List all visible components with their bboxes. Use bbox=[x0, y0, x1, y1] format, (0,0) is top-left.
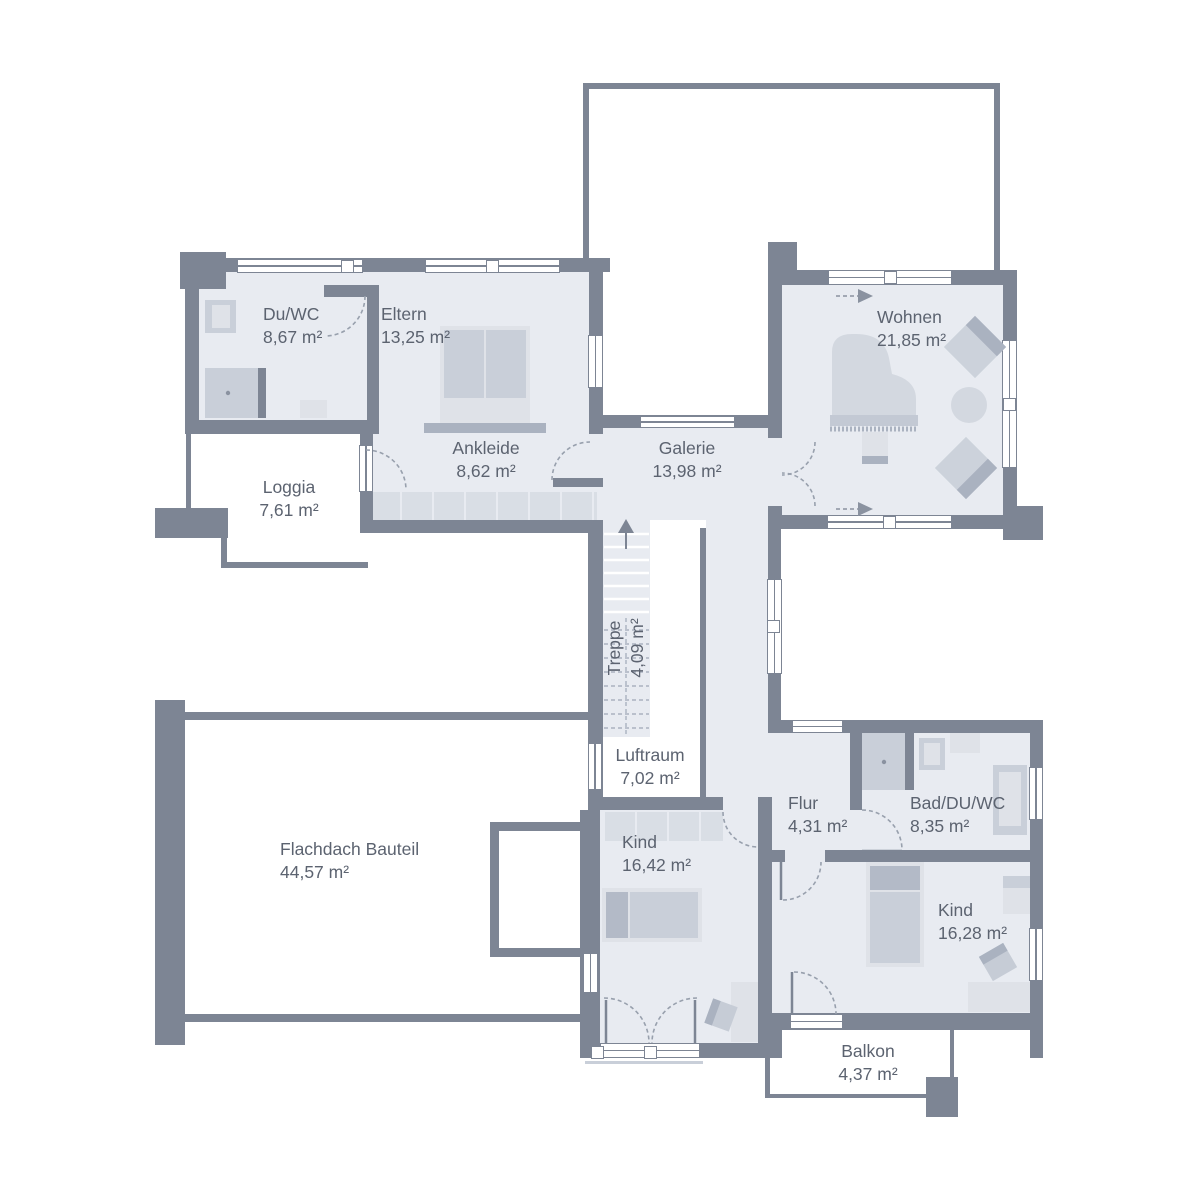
room-label-du-wc: Du/WC 8,67 m² bbox=[263, 303, 322, 349]
room-label-balkon: Balkon 4,37 m² bbox=[838, 1040, 897, 1086]
wall-segment bbox=[155, 508, 228, 538]
window bbox=[583, 953, 598, 993]
room-area: 7,02 m² bbox=[615, 767, 684, 790]
wall-segment bbox=[186, 434, 191, 512]
wall-segment bbox=[367, 285, 379, 420]
window-mullion bbox=[341, 260, 354, 273]
room-area: 13,25 m² bbox=[381, 326, 450, 349]
room-area: 16,28 m² bbox=[938, 922, 1007, 945]
room-name: Flachdach Bauteil bbox=[280, 838, 419, 861]
wall-segment bbox=[758, 1013, 782, 1058]
window-glazing-line bbox=[595, 336, 597, 387]
wall-segment bbox=[592, 797, 723, 810]
room-label-bad: Bad/DU/WC 8,35 m² bbox=[910, 792, 1005, 838]
wall-segment bbox=[765, 1058, 770, 1098]
wall-segment bbox=[758, 797, 772, 1045]
room-area: 4,09 m² bbox=[626, 618, 649, 677]
room-name: Wohnen bbox=[877, 306, 946, 329]
room-name: Balkon bbox=[838, 1040, 897, 1063]
room-area: 44,57 m² bbox=[280, 861, 419, 884]
wall-segment bbox=[324, 285, 379, 297]
wall-segment bbox=[825, 850, 862, 862]
room-name: Ankleide bbox=[452, 437, 519, 460]
window bbox=[359, 445, 373, 492]
room-label-wohnen: Wohnen 21,85 m² bbox=[877, 306, 946, 352]
window-mullion bbox=[883, 516, 896, 529]
room-name: Loggia bbox=[259, 476, 318, 499]
window-mullion bbox=[767, 620, 780, 633]
wall-segment bbox=[583, 83, 589, 271]
bed-pillow bbox=[870, 866, 920, 890]
window-mullion bbox=[644, 1046, 657, 1059]
wall-segment bbox=[553, 478, 603, 487]
window bbox=[790, 1014, 843, 1029]
wall-segment bbox=[926, 1077, 958, 1117]
room-name: Kind bbox=[622, 831, 691, 854]
door-sill bbox=[585, 1061, 703, 1064]
bed-bench bbox=[424, 423, 546, 433]
sink-basin bbox=[212, 305, 230, 328]
room-floor bbox=[850, 810, 862, 850]
bed-pillow bbox=[606, 892, 628, 938]
window-glazing-line bbox=[590, 954, 592, 992]
room-area: 4,37 m² bbox=[838, 1063, 897, 1086]
window-mullion bbox=[1003, 398, 1016, 411]
wall-segment bbox=[185, 258, 199, 434]
room-area: 8,35 m² bbox=[910, 815, 1005, 838]
room-name: Treppe bbox=[603, 618, 626, 677]
window-mullion bbox=[884, 271, 897, 284]
wall-segment bbox=[185, 420, 379, 434]
room-label-luftraum: Luftraum 7,02 m² bbox=[615, 744, 684, 790]
wall-segment bbox=[950, 1030, 954, 1078]
wall-segment bbox=[905, 733, 914, 790]
room-name: Eltern bbox=[381, 303, 450, 326]
wall-segment bbox=[850, 733, 862, 810]
window-mullion bbox=[591, 1046, 604, 1059]
wall-segment bbox=[580, 810, 600, 1043]
room-label-flur: Flur 4,31 m² bbox=[788, 792, 847, 838]
shower bbox=[862, 733, 906, 790]
room-name: Bad/DU/WC bbox=[910, 792, 1005, 815]
shelf-top bbox=[1003, 876, 1030, 888]
washbasin-bowl bbox=[924, 743, 940, 765]
wall-segment bbox=[360, 520, 603, 533]
wall-segment bbox=[768, 242, 797, 272]
room-area: 8,67 m² bbox=[263, 326, 322, 349]
room-name: Du/WC bbox=[263, 303, 322, 326]
room-area: 8,62 m² bbox=[452, 460, 519, 483]
wall-segment bbox=[490, 822, 600, 831]
room-name: Kind bbox=[938, 899, 1007, 922]
room-name: Luftraum bbox=[615, 744, 684, 767]
side-table bbox=[862, 432, 888, 456]
wall-segment bbox=[758, 850, 785, 862]
room-label-kind-2: Kind 16,28 m² bbox=[938, 899, 1007, 945]
wall-segment bbox=[862, 850, 1043, 862]
side-table-edge bbox=[862, 456, 888, 464]
room-label-eltern: Eltern 13,25 m² bbox=[381, 303, 450, 349]
wall-segment bbox=[700, 528, 706, 807]
desk bbox=[968, 982, 1030, 1012]
window-mullion bbox=[486, 260, 499, 273]
window-glazing-line bbox=[1035, 929, 1037, 980]
toilet bbox=[300, 400, 327, 418]
room-label-treppe: Treppe 4,09 m² bbox=[603, 618, 649, 677]
room-name: Galerie bbox=[652, 437, 721, 460]
floor-plan: Du/WC 8,67 m² Eltern 13,25 m² Ankleide 8… bbox=[0, 0, 1200, 1200]
wall-segment bbox=[183, 712, 593, 720]
window-glazing-line bbox=[793, 726, 842, 728]
room-area: 16,42 m² bbox=[622, 854, 691, 877]
window-glazing-line bbox=[594, 744, 596, 789]
wall-segment bbox=[155, 700, 185, 1045]
room-area: 21,85 m² bbox=[877, 329, 946, 352]
bed-duvet bbox=[630, 892, 698, 938]
window-glazing-line bbox=[1035, 768, 1037, 819]
window bbox=[588, 743, 602, 790]
window bbox=[1029, 767, 1043, 820]
window bbox=[588, 335, 603, 388]
window-glazing-line bbox=[365, 446, 367, 491]
wall-segment bbox=[490, 822, 499, 957]
room-area: 7,61 m² bbox=[259, 499, 318, 522]
room-name: Flur bbox=[788, 792, 847, 815]
room-label-loggia: Loggia 7,61 m² bbox=[259, 476, 318, 522]
wall-segment bbox=[994, 83, 1000, 273]
wall-segment bbox=[768, 271, 782, 438]
wall-segment bbox=[583, 83, 1000, 89]
bed-duvet bbox=[486, 330, 526, 398]
wall-segment bbox=[258, 368, 266, 418]
wall-segment bbox=[183, 1014, 593, 1022]
room-label-flachdach: Flachdach Bauteil 44,57 m² bbox=[280, 838, 419, 884]
window bbox=[792, 720, 843, 733]
window bbox=[1029, 928, 1043, 981]
room-label-ankleide: Ankleide 8,62 m² bbox=[452, 437, 519, 483]
wc bbox=[950, 733, 980, 753]
window-glazing-line bbox=[641, 421, 734, 423]
room-label-kind-1: Kind 16,42 m² bbox=[622, 831, 691, 877]
shower bbox=[205, 368, 258, 418]
room-label-galerie: Galerie 13,98 m² bbox=[652, 437, 721, 483]
bed-duvet bbox=[870, 892, 920, 963]
room-area: 13,98 m² bbox=[652, 460, 721, 483]
wall-segment bbox=[1003, 506, 1043, 540]
wall-segment bbox=[221, 562, 368, 568]
room-area: 4,31 m² bbox=[788, 815, 847, 838]
wall-segment bbox=[765, 1094, 937, 1098]
room-floor bbox=[706, 520, 768, 733]
window-glazing-line bbox=[791, 1021, 842, 1023]
room-floor bbox=[785, 850, 825, 862]
window bbox=[640, 416, 735, 428]
